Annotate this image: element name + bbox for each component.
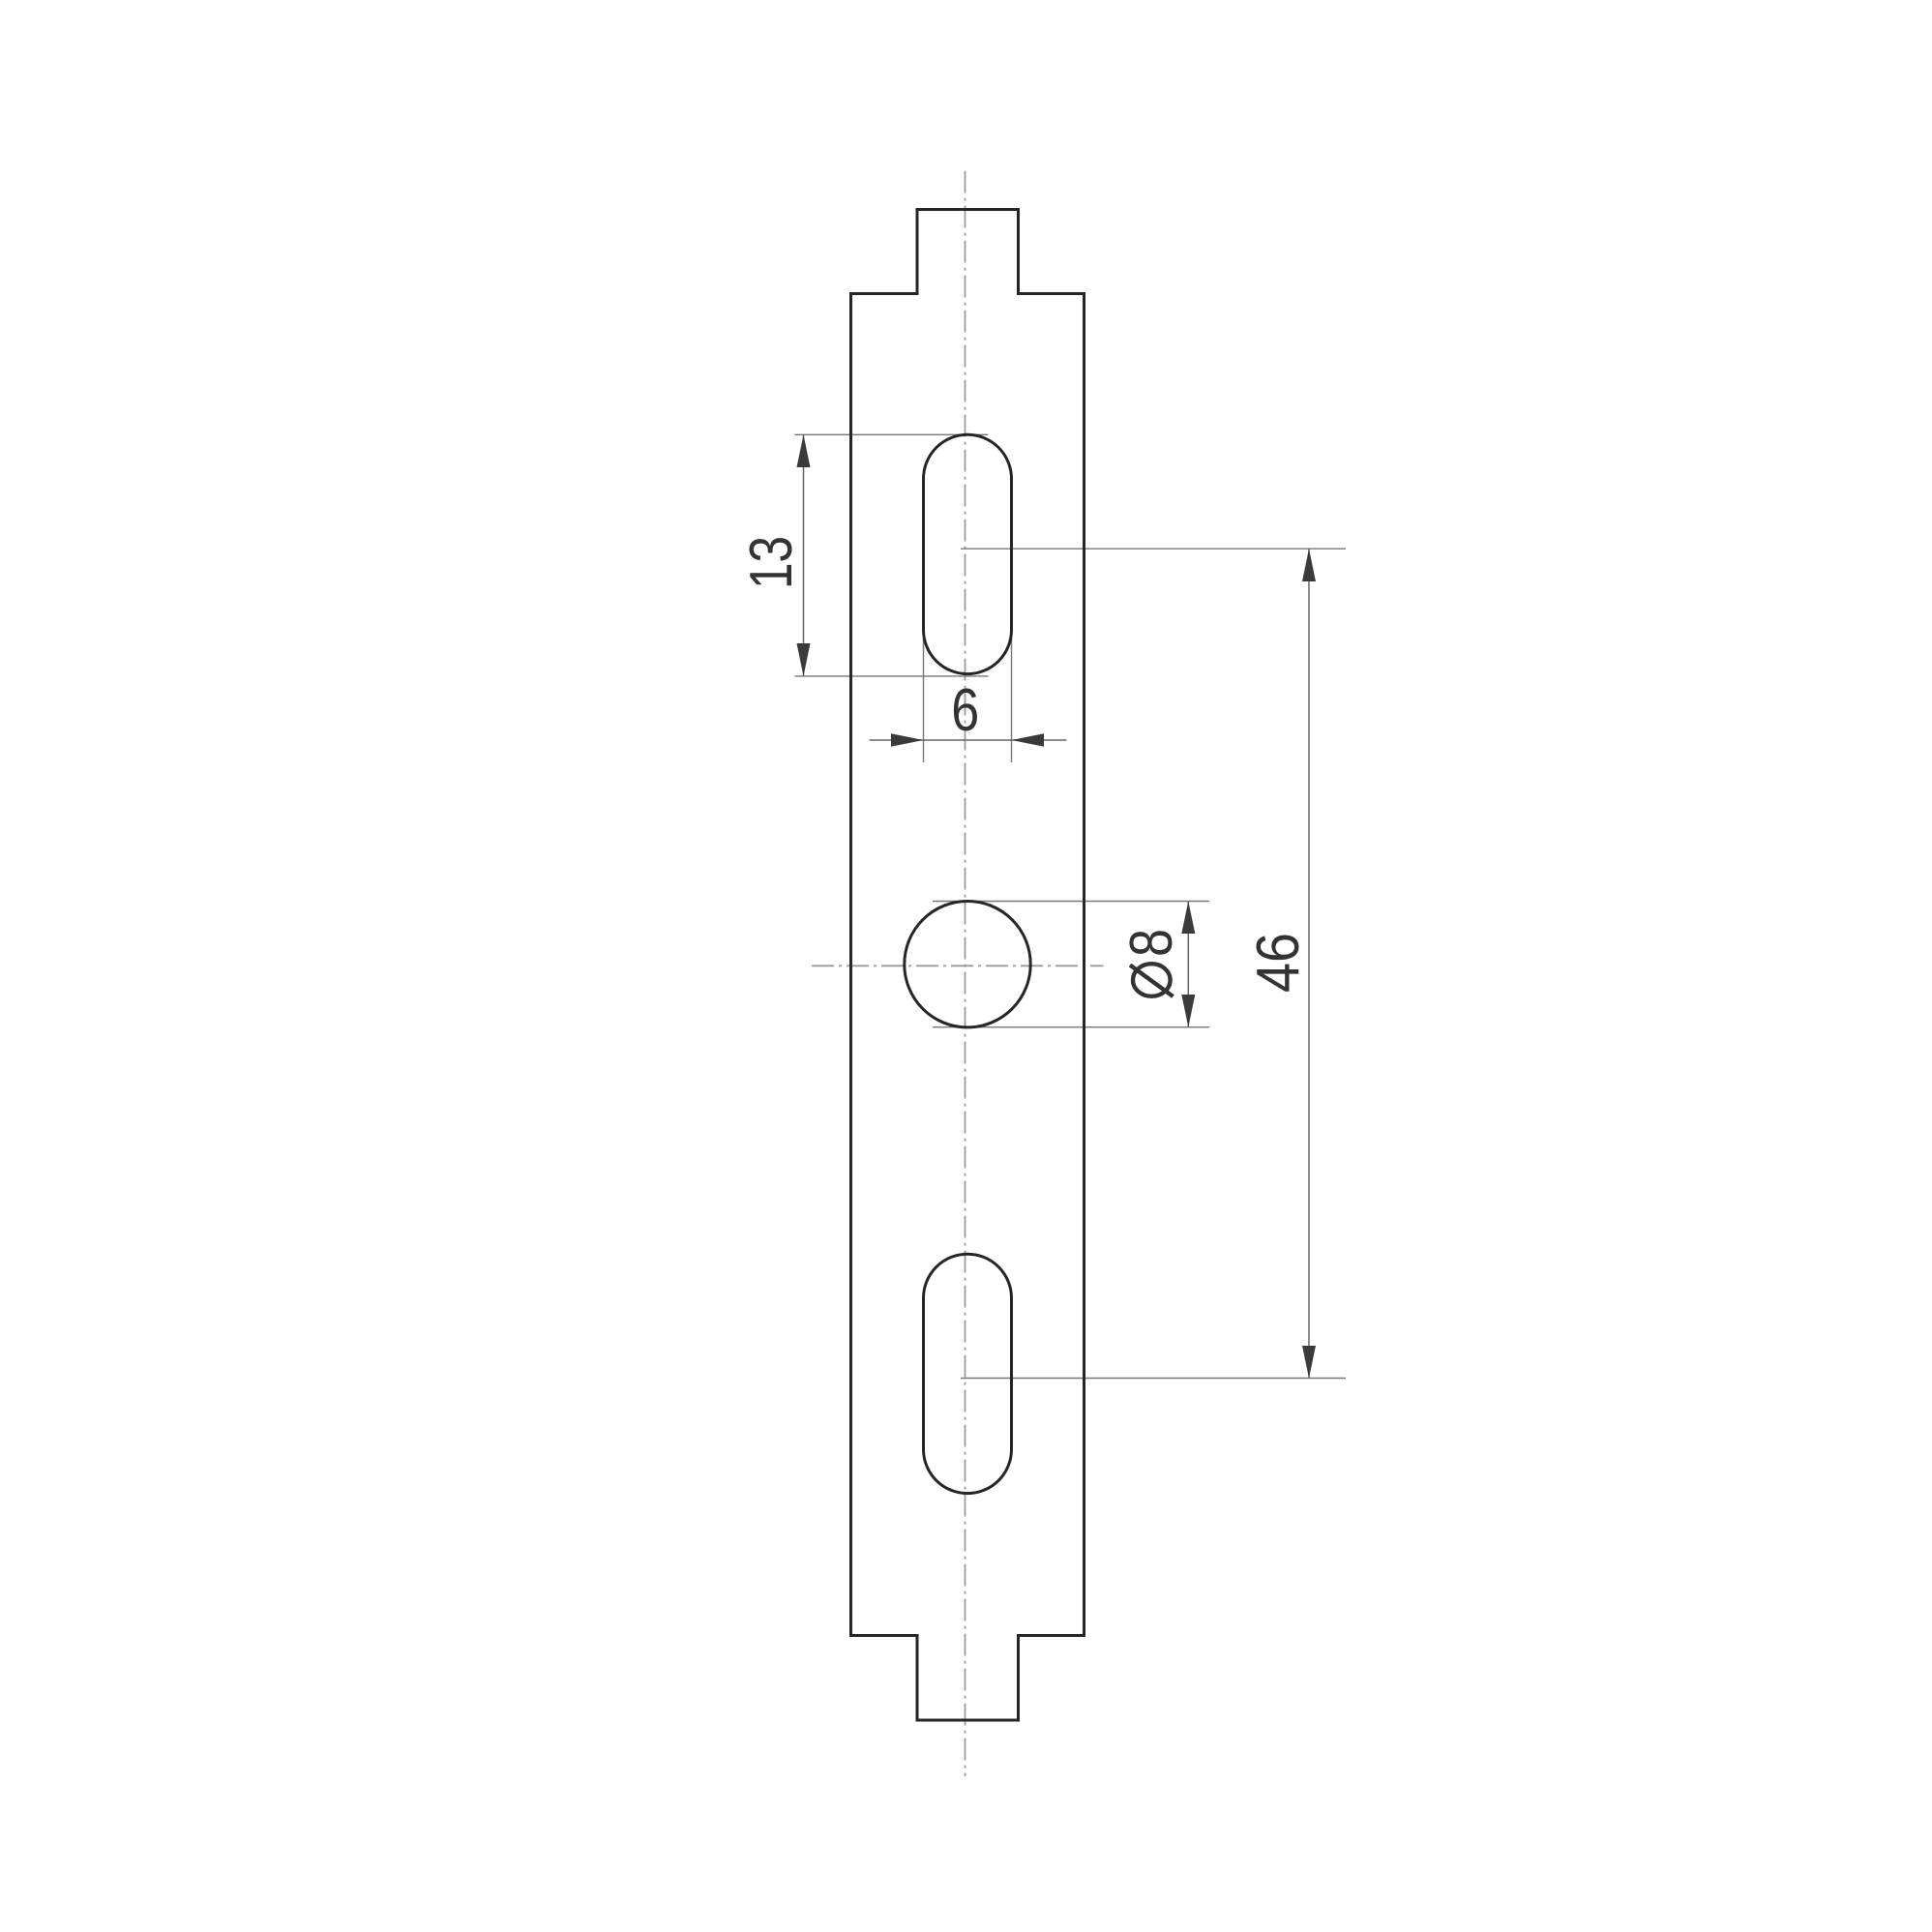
svg-text:6: 6 [951,677,979,744]
svg-text:13: 13 [738,536,805,589]
svg-text:8: 8 [1118,929,1185,957]
svg-text:46: 46 [1245,933,1312,993]
